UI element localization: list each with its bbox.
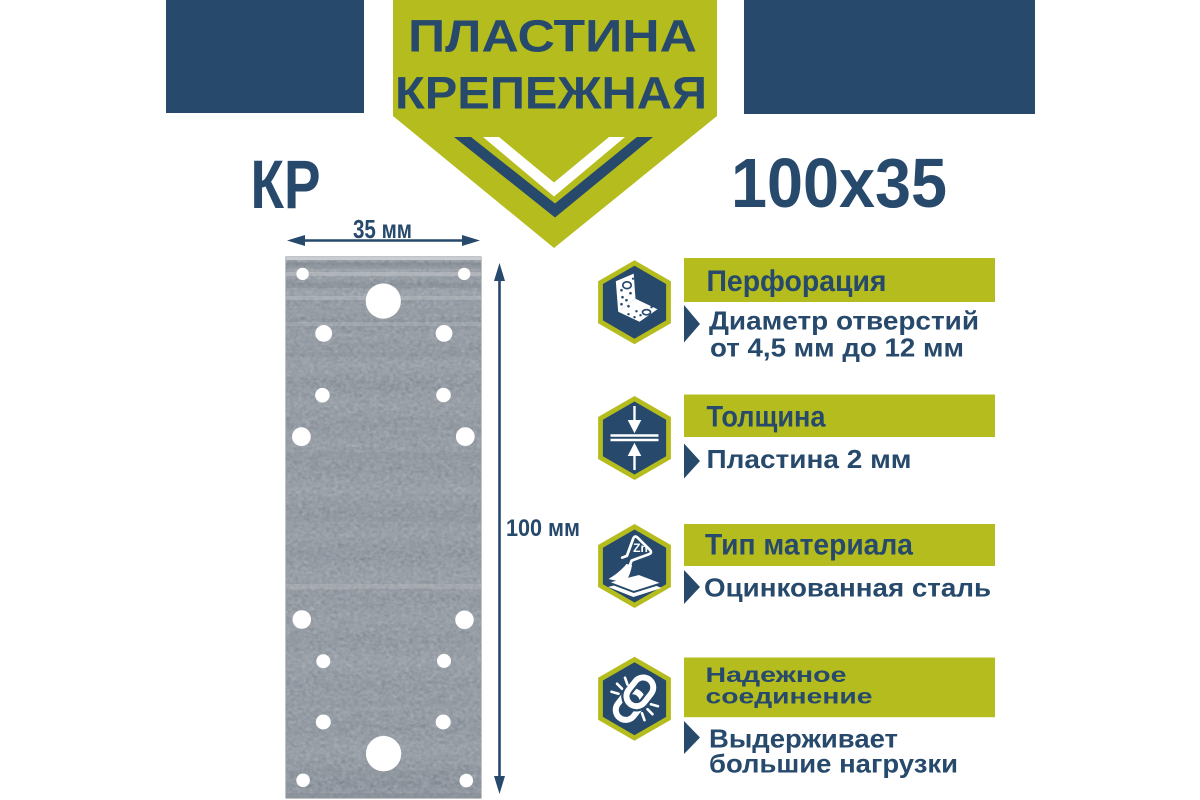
svg-text:КРЕПЕЖНАЯ: КРЕПЕЖНАЯ [395,67,707,118]
svg-text:Пластина 2 мм: Пластина 2 мм [707,444,912,474]
svg-text:Тип материала: Тип материала [705,529,914,562]
svg-text:КР: КР [251,146,321,223]
svg-text:Надежное: Надежное [706,663,847,687]
svg-text:Диаметр отверстий: Диаметр отверстий [709,306,979,336]
svg-text:Оцинкованная сталь: Оцинкованная сталь [704,573,991,603]
svg-text:100x35: 100x35 [731,144,947,222]
svg-text:соединение: соединение [706,685,873,709]
svg-text:ПЛАСТИНА: ПЛАСТИНА [408,10,697,61]
svg-text:Zn: Zn [633,541,648,555]
svg-text:от 4,5 мм до 12 мм: от 4,5 мм до 12 мм [710,333,964,363]
svg-text:100 мм: 100 мм [506,515,580,542]
svg-text:Перфорация: Перфорация [707,265,887,298]
svg-text:Толщина: Толщина [707,401,827,434]
svg-text:большие нагрузки: большие нагрузки [709,749,958,779]
